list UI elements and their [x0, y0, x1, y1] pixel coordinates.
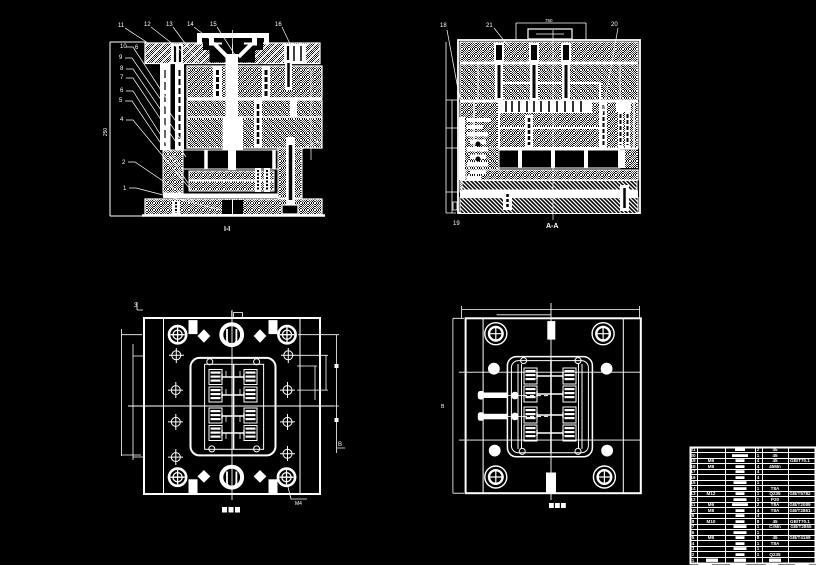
svg-text:13: 13 [690, 491, 696, 496]
svg-text:15: 15 [210, 22, 217, 28]
svg-text:45: 45 [772, 535, 778, 540]
svg-text:M8: M8 [708, 508, 715, 513]
svg-text:A-A: A-A [546, 223, 558, 230]
svg-text:11: 11 [118, 23, 125, 29]
svg-text:12: 12 [144, 22, 151, 28]
svg-text:250: 250 [103, 128, 109, 137]
svg-text:CrMn: CrMn [769, 524, 781, 529]
svg-text:T8A: T8A [771, 541, 780, 546]
svg-text:45Mn: 45Mn [769, 464, 781, 469]
svg-text:8: 8 [757, 535, 760, 540]
svg-text:1: 1 [757, 480, 760, 485]
svg-text:1: 1 [692, 558, 695, 563]
svg-text:T8A: T8A [771, 508, 780, 513]
svg-text:B: B [338, 442, 342, 448]
svg-text:3: 3 [692, 546, 695, 551]
svg-text:Q235: Q235 [769, 552, 781, 557]
svg-text:2: 2 [757, 447, 760, 452]
svg-text:19: 19 [453, 221, 460, 227]
svg-text:14: 14 [187, 22, 194, 28]
svg-text:GB/T70.1: GB/T70.1 [790, 458, 810, 463]
svg-text:4: 4 [757, 469, 760, 474]
svg-text:7: 7 [692, 524, 695, 529]
svg-text:Q235: Q235 [769, 491, 781, 496]
svg-text:10: 10 [120, 44, 127, 50]
svg-text:13: 13 [166, 22, 173, 28]
svg-text:2: 2 [692, 552, 695, 557]
svg-text:9: 9 [692, 513, 695, 518]
svg-text:45: 45 [772, 458, 778, 463]
svg-text:M10: M10 [707, 519, 716, 524]
svg-text:4: 4 [757, 458, 760, 463]
svg-text:1: 1 [757, 524, 760, 529]
svg-text:17: 17 [690, 469, 696, 474]
svg-text:17: 17 [316, 139, 323, 145]
svg-text:T8A: T8A [771, 502, 780, 507]
svg-text:2: 2 [757, 502, 760, 507]
svg-text:1: 1 [757, 546, 760, 551]
svg-text:M6: M6 [708, 535, 715, 540]
svg-text:4: 4 [757, 513, 760, 518]
svg-text:M12: M12 [707, 491, 716, 496]
svg-text:M6: M6 [708, 502, 715, 507]
svg-text:GB/T4169: GB/T4169 [789, 535, 811, 540]
svg-text:5: 5 [692, 535, 695, 540]
svg-text:1: 1 [757, 552, 760, 557]
svg-text:1: 1 [757, 491, 760, 496]
svg-text:M6: M6 [708, 458, 715, 463]
svg-text:19: 19 [690, 458, 696, 463]
svg-text:M4: M4 [295, 501, 302, 507]
svg-text:GB/T2861: GB/T2861 [789, 508, 811, 513]
svg-text:I-I: I-I [224, 226, 230, 233]
svg-text:18: 18 [440, 23, 447, 29]
svg-text:11: 11 [691, 502, 696, 507]
svg-text:21: 21 [690, 447, 696, 452]
svg-text:750: 750 [545, 18, 553, 23]
svg-text:16: 16 [275, 22, 282, 28]
svg-text:45: 45 [772, 447, 778, 452]
svg-text:21: 21 [486, 23, 493, 29]
svg-text:GB/T2089: GB/T2089 [789, 502, 811, 507]
svg-text:20: 20 [611, 22, 618, 28]
svg-text:7: 7 [274, 411, 277, 417]
svg-text:GB/T2855: GB/T2855 [790, 524, 812, 529]
svg-text:GB/T5782: GB/T5782 [789, 491, 811, 496]
svg-text:15: 15 [690, 480, 696, 485]
svg-text:M8: M8 [708, 464, 715, 469]
